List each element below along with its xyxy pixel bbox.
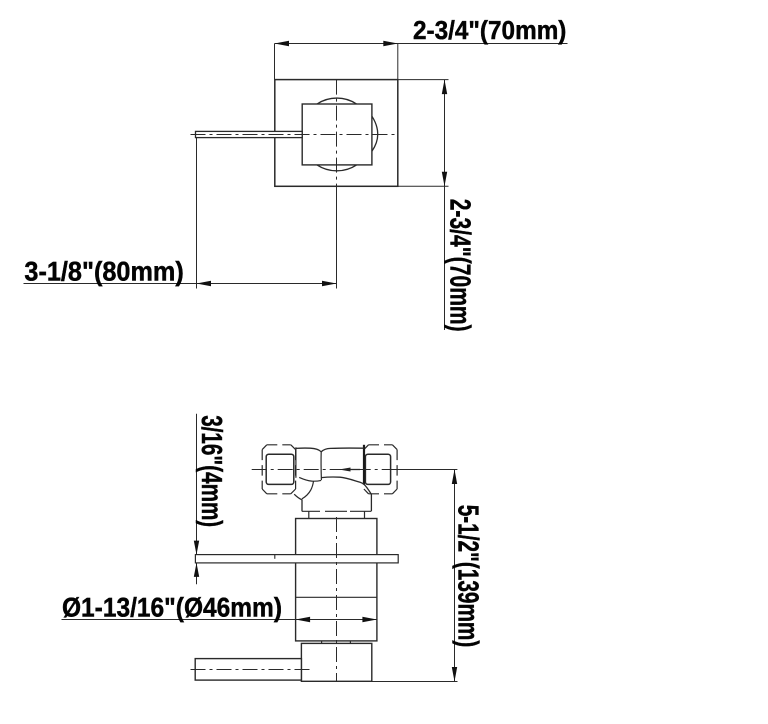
svg-text:5-1/2"(139mm): 5-1/2"(139mm) (452, 505, 484, 648)
svg-text:2-3/4"(70mm): 2-3/4"(70mm) (443, 199, 475, 332)
svg-text:3-1/8"(80mm): 3-1/8"(80mm) (24, 256, 183, 286)
svg-text:2-3/4"(70mm): 2-3/4"(70mm) (413, 15, 566, 45)
svg-text:Ø1-13/16"(Ø46mm): Ø1-13/16"(Ø46mm) (62, 593, 282, 623)
svg-text:3/16"(4mm): 3/16"(4mm) (195, 415, 227, 527)
